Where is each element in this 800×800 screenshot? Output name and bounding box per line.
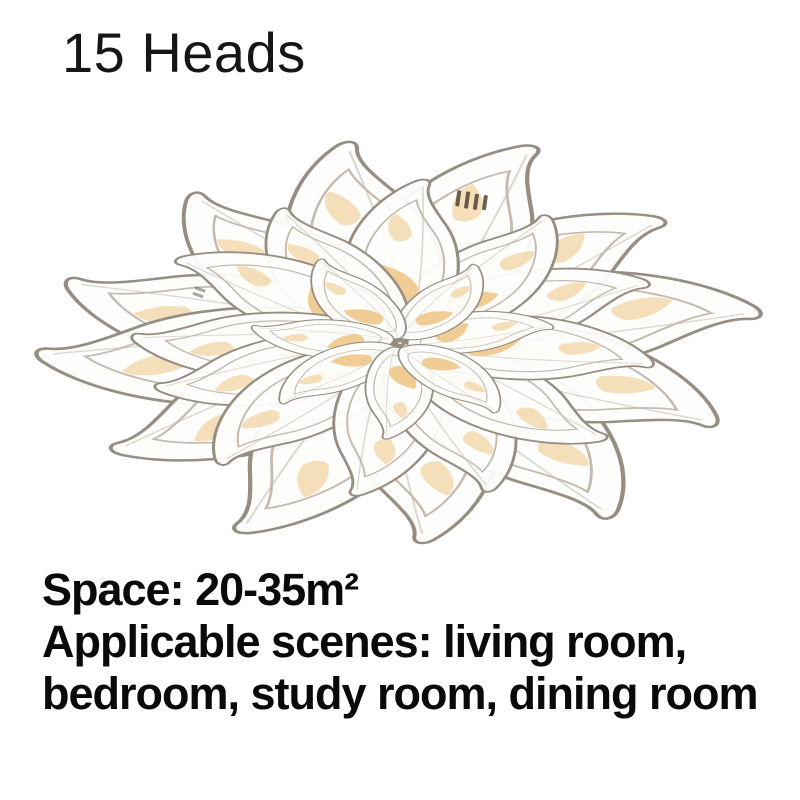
product-specs: Space: 20-35m² Applicable scenes: living…: [42, 564, 758, 720]
lamp-illustration: [0, 105, 800, 575]
petal-rings: [33, 126, 770, 558]
product-image: [0, 105, 800, 575]
spec-scenes-line1: Applicable scenes: living room,: [42, 616, 758, 668]
heads-count-label: 15 Heads: [62, 20, 306, 85]
spec-space: Space: 20-35m²: [42, 564, 758, 616]
spec-scenes-line2: bedroom, study room, dining room: [42, 668, 758, 720]
